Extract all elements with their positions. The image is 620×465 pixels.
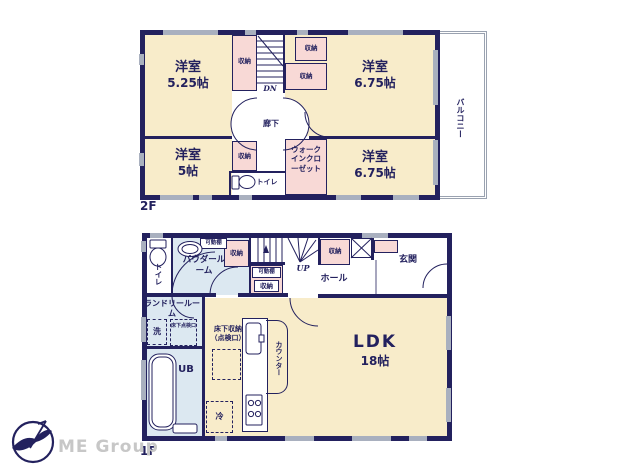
fridge-label: 冷 — [206, 412, 233, 422]
room-name: 洋室 — [175, 148, 201, 163]
unit-bath-label: UB — [172, 364, 200, 378]
wall — [238, 293, 288, 297]
window — [245, 30, 256, 35]
underfloor-storage-outline — [212, 349, 241, 380]
underfloor-storage-label: 床下収納（点検口） — [204, 325, 252, 343]
floor2-label: 2F — [140, 199, 170, 213]
movable-shelf-label: 可動棚 — [200, 240, 227, 248]
room-label: 洋室5帖 — [146, 148, 230, 181]
window — [297, 30, 308, 35]
balcony-label: バルコニー — [452, 92, 465, 144]
toilet-2f-label: トイレ — [250, 178, 284, 188]
room-size: 6.75帖 — [354, 166, 396, 180]
window — [393, 195, 419, 200]
toilet-1f-label: トイレ — [152, 256, 163, 292]
storage-label: 収納 — [233, 152, 256, 162]
entrance-label: 玄関 — [388, 255, 428, 268]
wall — [171, 238, 173, 295]
laundry-label: ランドリールーム — [142, 299, 202, 319]
shoe-cabinet — [374, 240, 398, 253]
hallway-label: 廊下 — [257, 119, 285, 129]
window — [239, 195, 252, 200]
wall — [309, 136, 435, 139]
wall — [146, 293, 216, 297]
storage-label: 収納 — [321, 247, 349, 257]
balcony-door — [433, 140, 438, 185]
storage-label: 収納 — [225, 249, 248, 258]
storage-label: 収納 — [233, 57, 256, 67]
underfloor-storage-line2: （点検口） — [211, 334, 246, 342]
wall — [318, 238, 320, 265]
wall — [145, 136, 232, 139]
room-name: 洋室 — [362, 150, 388, 165]
wall — [202, 294, 205, 441]
wall — [318, 294, 452, 298]
window — [163, 30, 218, 35]
window — [336, 195, 361, 200]
window — [409, 436, 427, 441]
wall — [147, 346, 205, 349]
hall-label: ホール — [310, 274, 358, 287]
room-label: 洋室6.75帖 — [330, 60, 420, 93]
room-size: 6.75帖 — [354, 76, 396, 90]
compass-icon — [12, 421, 53, 462]
window — [352, 436, 391, 441]
window — [141, 360, 146, 400]
window — [141, 317, 146, 342]
window — [285, 436, 314, 441]
underfloor-storage-line1: 床下収納 — [214, 325, 242, 333]
storage-label: 収納 — [286, 72, 326, 82]
stairs-dn-label: DN — [257, 84, 283, 94]
storage-label: 収納 — [296, 44, 326, 54]
brand-logo-text: ME Group — [58, 437, 168, 459]
wall — [283, 35, 285, 93]
room-name: 洋室 — [362, 60, 388, 75]
ldk-label: LDK — [335, 332, 415, 354]
window — [362, 233, 388, 238]
counter-label: カウンター — [269, 326, 283, 390]
movable-shelf-label: 可動棚 — [252, 269, 281, 277]
window — [215, 436, 227, 441]
room-size: 5.25帖 — [167, 76, 209, 90]
window — [348, 30, 403, 35]
walk-in-closet-label: ウォークインクローゼット — [288, 145, 324, 193]
window — [150, 233, 163, 238]
balcony-door — [433, 50, 438, 105]
underfloor-access-label: 床下点検口 — [171, 323, 196, 341]
shaft-box — [351, 238, 372, 258]
wall — [229, 171, 285, 173]
room-label: 洋室6.75帖 — [330, 150, 420, 183]
stairs-up-label: UP — [291, 263, 315, 274]
wall — [250, 262, 285, 265]
unit-bath — [147, 349, 205, 436]
ldk-size-label: 18帖 — [335, 354, 415, 370]
window — [446, 388, 451, 422]
room-name: 洋室 — [175, 60, 201, 75]
window — [446, 316, 451, 350]
washer-label: 洗 — [147, 327, 167, 337]
wall — [371, 238, 374, 260]
powder-room-label: パウダールーム — [182, 255, 226, 276]
wall — [249, 238, 251, 296]
window — [139, 54, 144, 65]
window — [199, 195, 212, 200]
room-label: 洋室5.25帖 — [146, 60, 230, 93]
floorplan-canvas: バルコニー 収納 収納 収納 収納 ウォークインクローゼット 洋室5.25帖 洋… — [0, 0, 620, 465]
window — [141, 241, 146, 252]
window — [139, 153, 144, 166]
storage-label: 収納 — [254, 282, 279, 291]
room-size: 5帖 — [178, 164, 198, 178]
